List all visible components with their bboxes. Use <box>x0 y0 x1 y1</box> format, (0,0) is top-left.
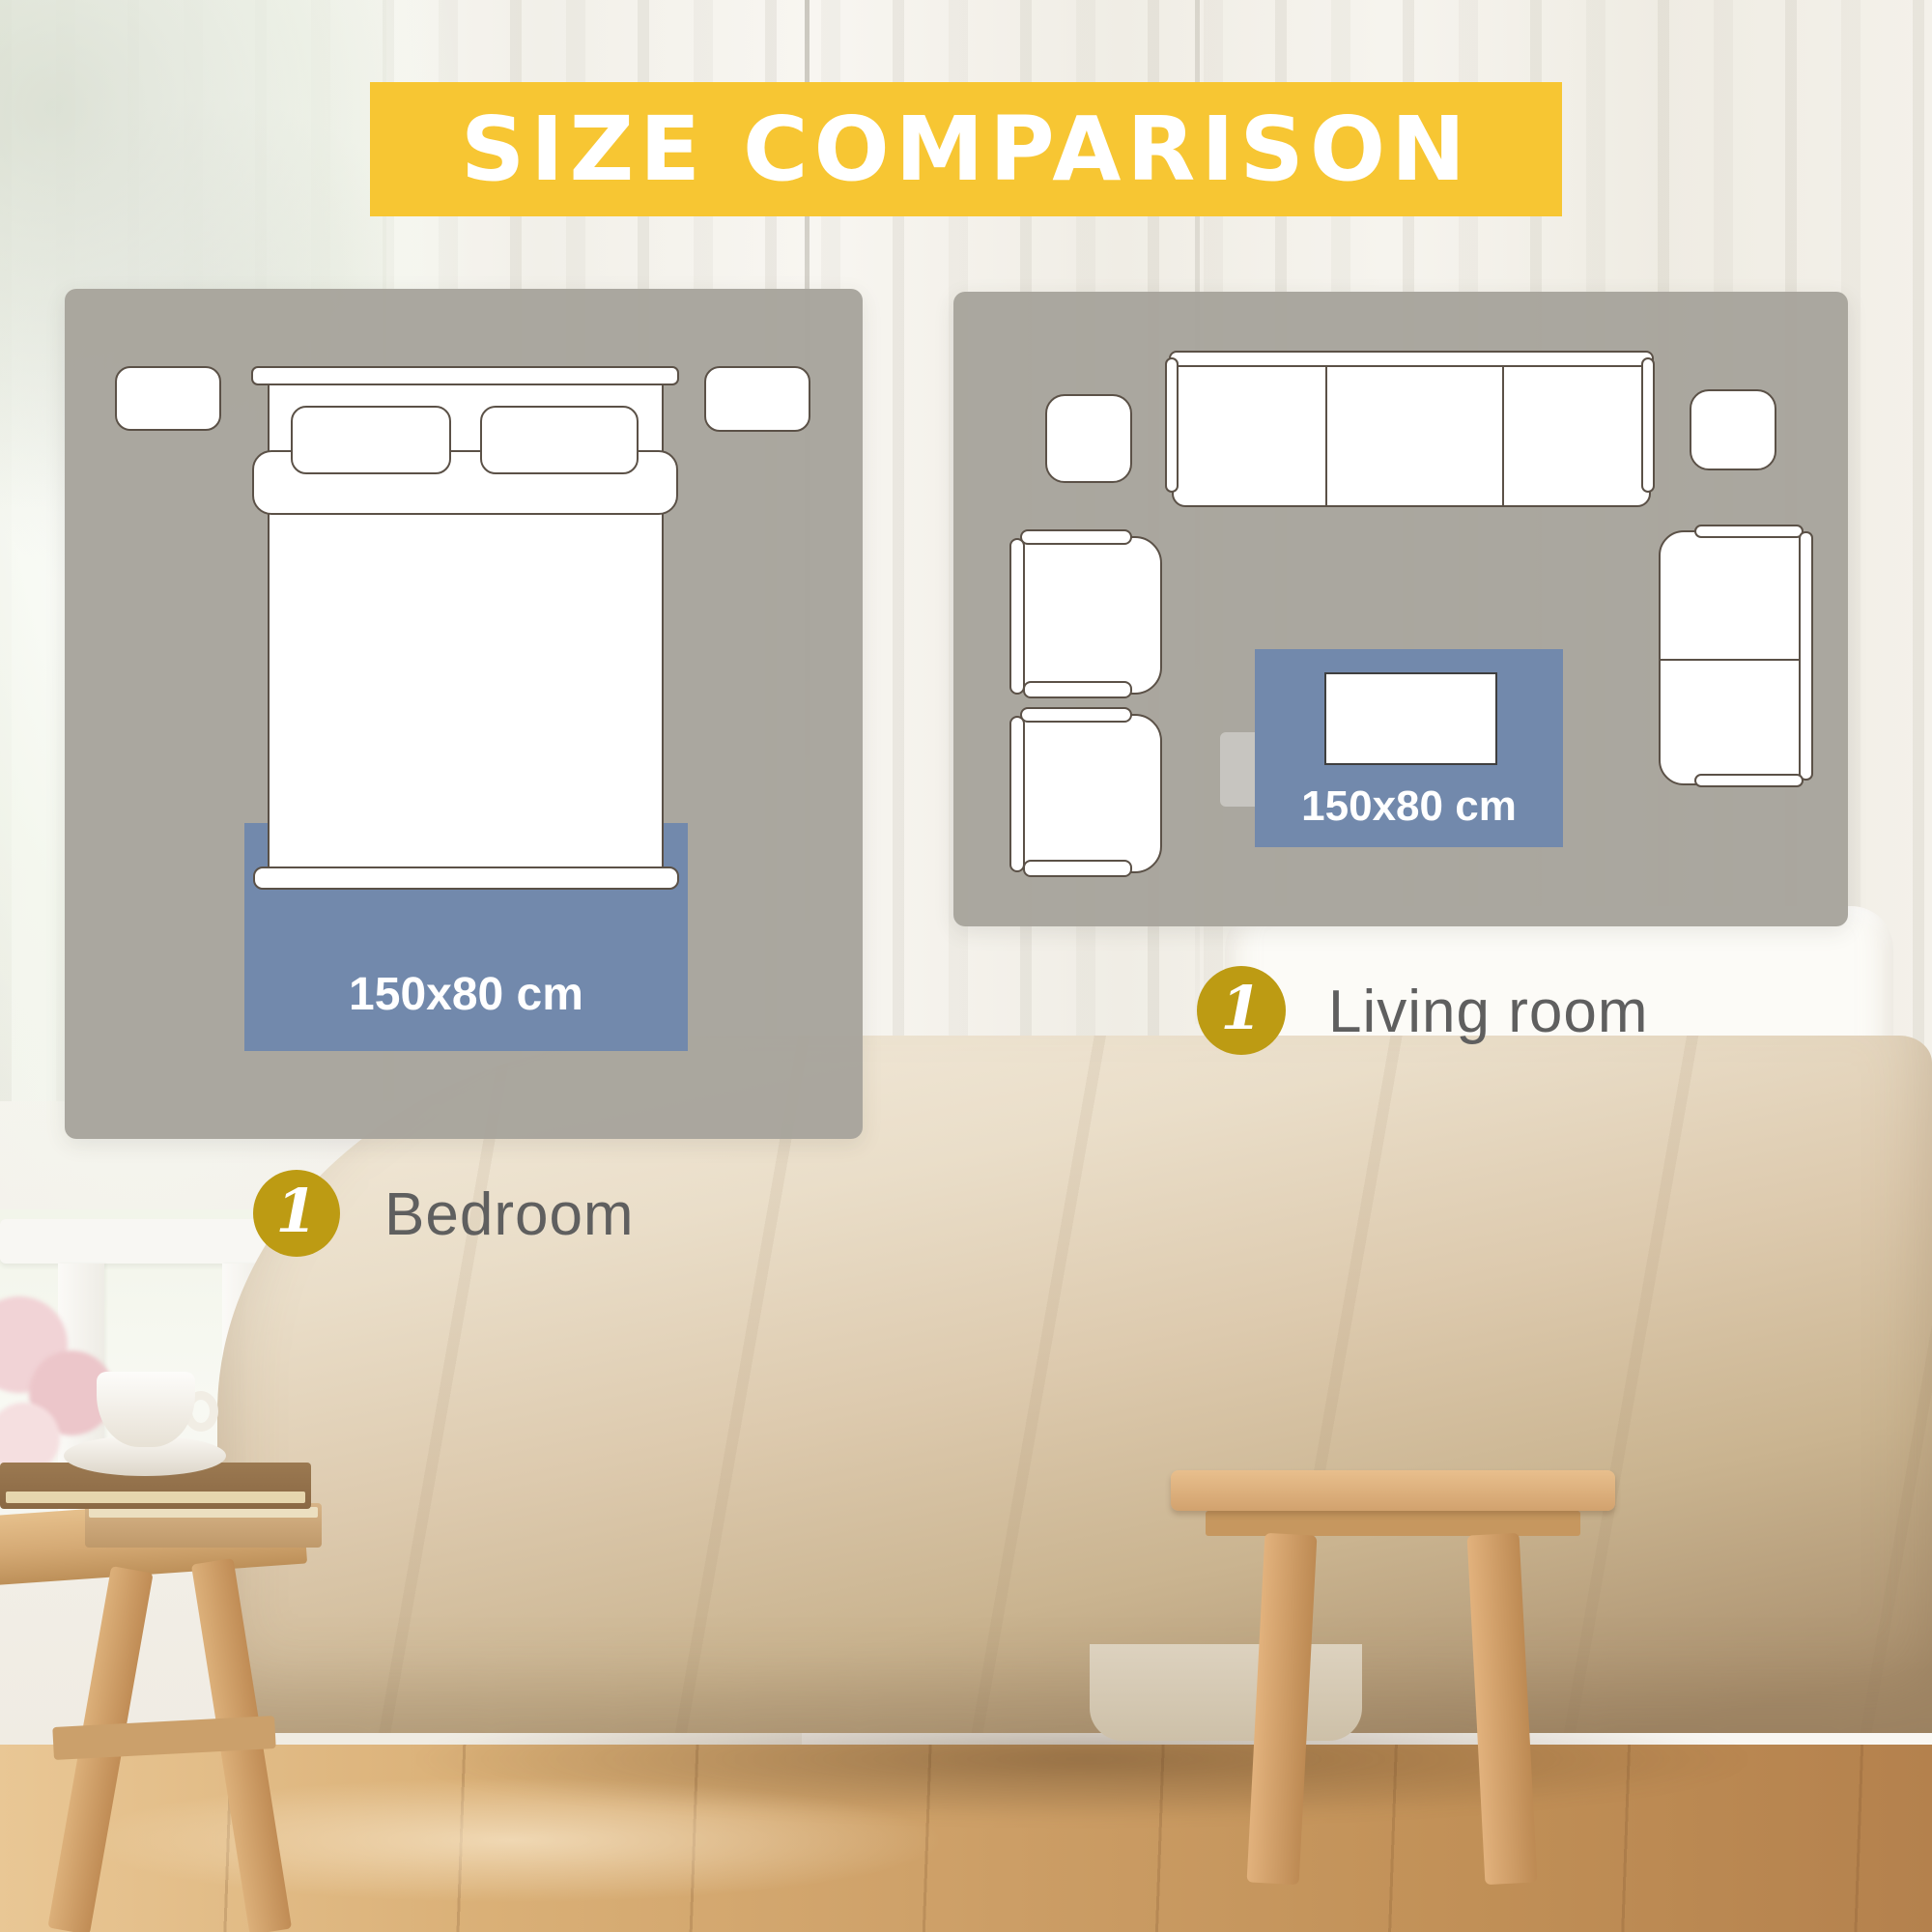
nightstand-right-icon <box>704 366 810 432</box>
rug-living-room: 150x80 cm <box>1255 649 1563 847</box>
rug-size-label: 150x80 cm <box>244 968 688 1021</box>
living-room-floorplan-panel: 150x80 cm <box>953 292 1848 926</box>
bedroom-badge: 1 <box>253 1170 340 1257</box>
side-table-left-icon <box>1045 394 1132 483</box>
sofa-seat-icon <box>1172 365 1651 507</box>
photo-bed-blanket <box>217 1036 1932 1733</box>
armchair-top-seat-icon <box>1021 536 1162 695</box>
loveseat-back-icon <box>1799 531 1813 781</box>
armchair-bottom-seat-icon <box>1021 714 1162 873</box>
nightstand-left-icon <box>115 366 221 431</box>
book-pages <box>6 1492 305 1503</box>
bedroom-floorplan-panel: 150x80 cm <box>65 289 863 1139</box>
wood-stool <box>1171 1470 1615 1511</box>
armchair-bottom-armrest-icon <box>1023 860 1132 877</box>
bed-headboard-icon <box>251 366 679 385</box>
armchair-top-armrest-icon <box>1009 538 1025 695</box>
stool-apron <box>1206 1511 1580 1536</box>
living-room-badge: 1 <box>1197 966 1286 1055</box>
rug-size-label: 150x80 cm <box>1255 782 1563 831</box>
bed-footboard-icon <box>253 867 679 890</box>
hanging-sheet <box>1090 1644 1362 1741</box>
loveseat-armrest-icon <box>1694 774 1804 787</box>
pillow-right-icon <box>480 406 639 474</box>
living-room-label: Living room <box>1328 978 1648 1046</box>
side-table-right-icon <box>1690 389 1776 470</box>
loveseat-armrest-icon <box>1694 525 1804 538</box>
armchair-top-back-icon <box>1020 529 1132 545</box>
coffee-table-icon <box>1324 672 1497 765</box>
pillow-left-icon <box>291 406 451 474</box>
sofa-armrest-right-icon <box>1641 357 1655 493</box>
title-text: SIZE COMPARISON <box>461 98 1471 201</box>
title-banner: SIZE COMPARISON <box>370 82 1562 216</box>
armchair-bottom-back-icon <box>1020 707 1132 723</box>
armchair-bottom-armrest-icon <box>1009 716 1025 872</box>
size-comparison-infographic: SIZE COMPARISON 150x80 cm <box>0 0 1932 1932</box>
loveseat-seat-icon <box>1659 530 1801 785</box>
sofa-armrest-left-icon <box>1165 357 1179 493</box>
armchair-top-armrest-icon <box>1023 681 1132 698</box>
bedroom-label: Bedroom <box>384 1180 635 1249</box>
